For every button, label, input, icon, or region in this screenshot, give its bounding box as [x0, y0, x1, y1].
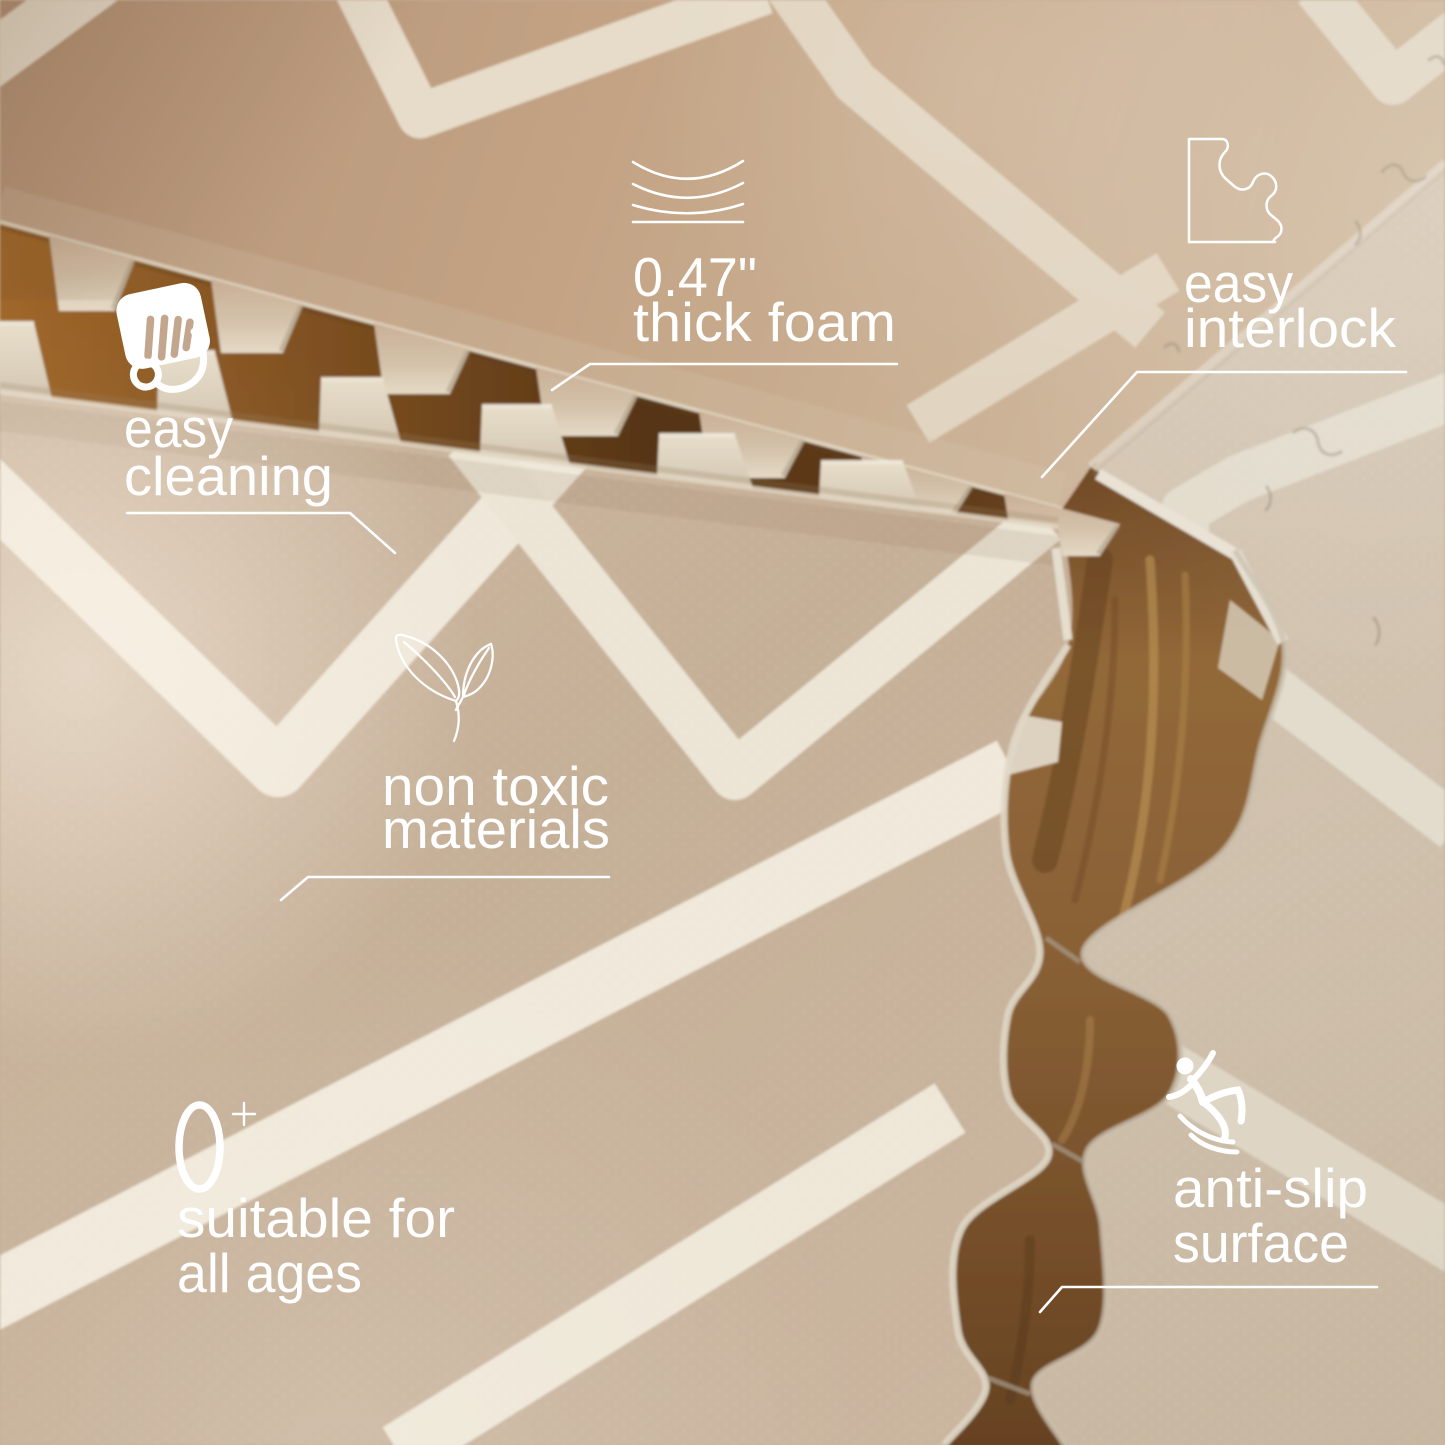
svg-text:thick foam: thick foam: [633, 291, 896, 353]
svg-text:materials: materials: [382, 798, 610, 860]
svg-text:suitable for: suitable for: [177, 1187, 455, 1249]
svg-text:anti-slip: anti-slip: [1173, 1157, 1368, 1219]
svg-text:surface: surface: [1173, 1212, 1349, 1274]
svg-text:interlock: interlock: [1184, 297, 1397, 359]
svg-text:all ages: all ages: [177, 1242, 362, 1304]
svg-text:cleaning: cleaning: [124, 445, 333, 507]
